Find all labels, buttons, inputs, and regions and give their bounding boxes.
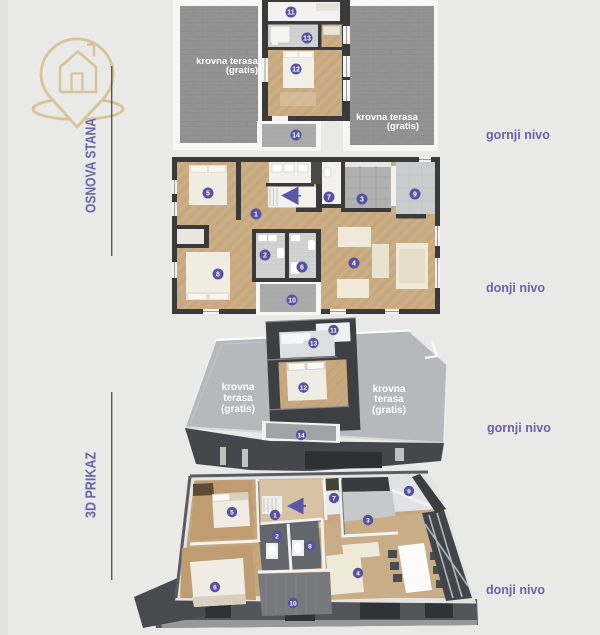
svg-text:7: 7 [327,195,331,202]
svg-text:9: 9 [413,192,417,199]
svg-text:12: 12 [292,67,300,74]
svg-text:krovna: krovna [222,382,255,393]
svg-text:14: 14 [297,432,305,439]
svg-text:gornji nivo: gornji nivo [487,421,551,435]
svg-text:terasa: terasa [374,394,404,405]
svg-text:(gratis): (gratis) [372,405,406,416]
svg-text:1: 1 [254,212,258,219]
svg-text:1: 1 [273,512,277,519]
svg-text:3: 3 [366,517,370,524]
svg-text:12: 12 [300,385,308,392]
svg-text:terasa: terasa [223,393,253,404]
svg-text:2: 2 [263,253,267,260]
svg-text:gornji nivo: gornji nivo [486,128,550,142]
svg-text:8: 8 [308,543,312,550]
svg-text:13: 13 [303,36,311,43]
svg-text:6: 6 [213,584,217,591]
svg-text:donji nivo: donji nivo [486,281,545,295]
svg-text:3: 3 [360,197,364,204]
svg-text:5: 5 [206,191,210,198]
svg-text:(gratis): (gratis) [387,121,419,132]
svg-text:4: 4 [356,570,360,577]
svg-text:OSNOVA STANA: OSNOVA STANA [83,118,100,213]
svg-text:13: 13 [310,340,318,347]
svg-text:2: 2 [275,533,279,540]
svg-text:11: 11 [287,10,295,17]
svg-text:6: 6 [300,265,304,272]
svg-text:10: 10 [289,600,297,607]
svg-text:3D PRIKAZ: 3D PRIKAZ [83,452,100,518]
svg-text:(gratis): (gratis) [226,65,258,76]
svg-text:4: 4 [352,261,356,268]
svg-text:5: 5 [230,509,234,516]
svg-text:donji nivo: donji nivo [486,583,545,597]
svg-text:10: 10 [288,298,296,305]
svg-text:8: 8 [216,272,220,279]
svg-text:11: 11 [330,327,337,334]
svg-text:(gratis): (gratis) [221,404,255,415]
svg-text:14: 14 [292,133,300,140]
svg-text:7: 7 [332,495,336,502]
svg-text:9: 9 [407,488,411,495]
